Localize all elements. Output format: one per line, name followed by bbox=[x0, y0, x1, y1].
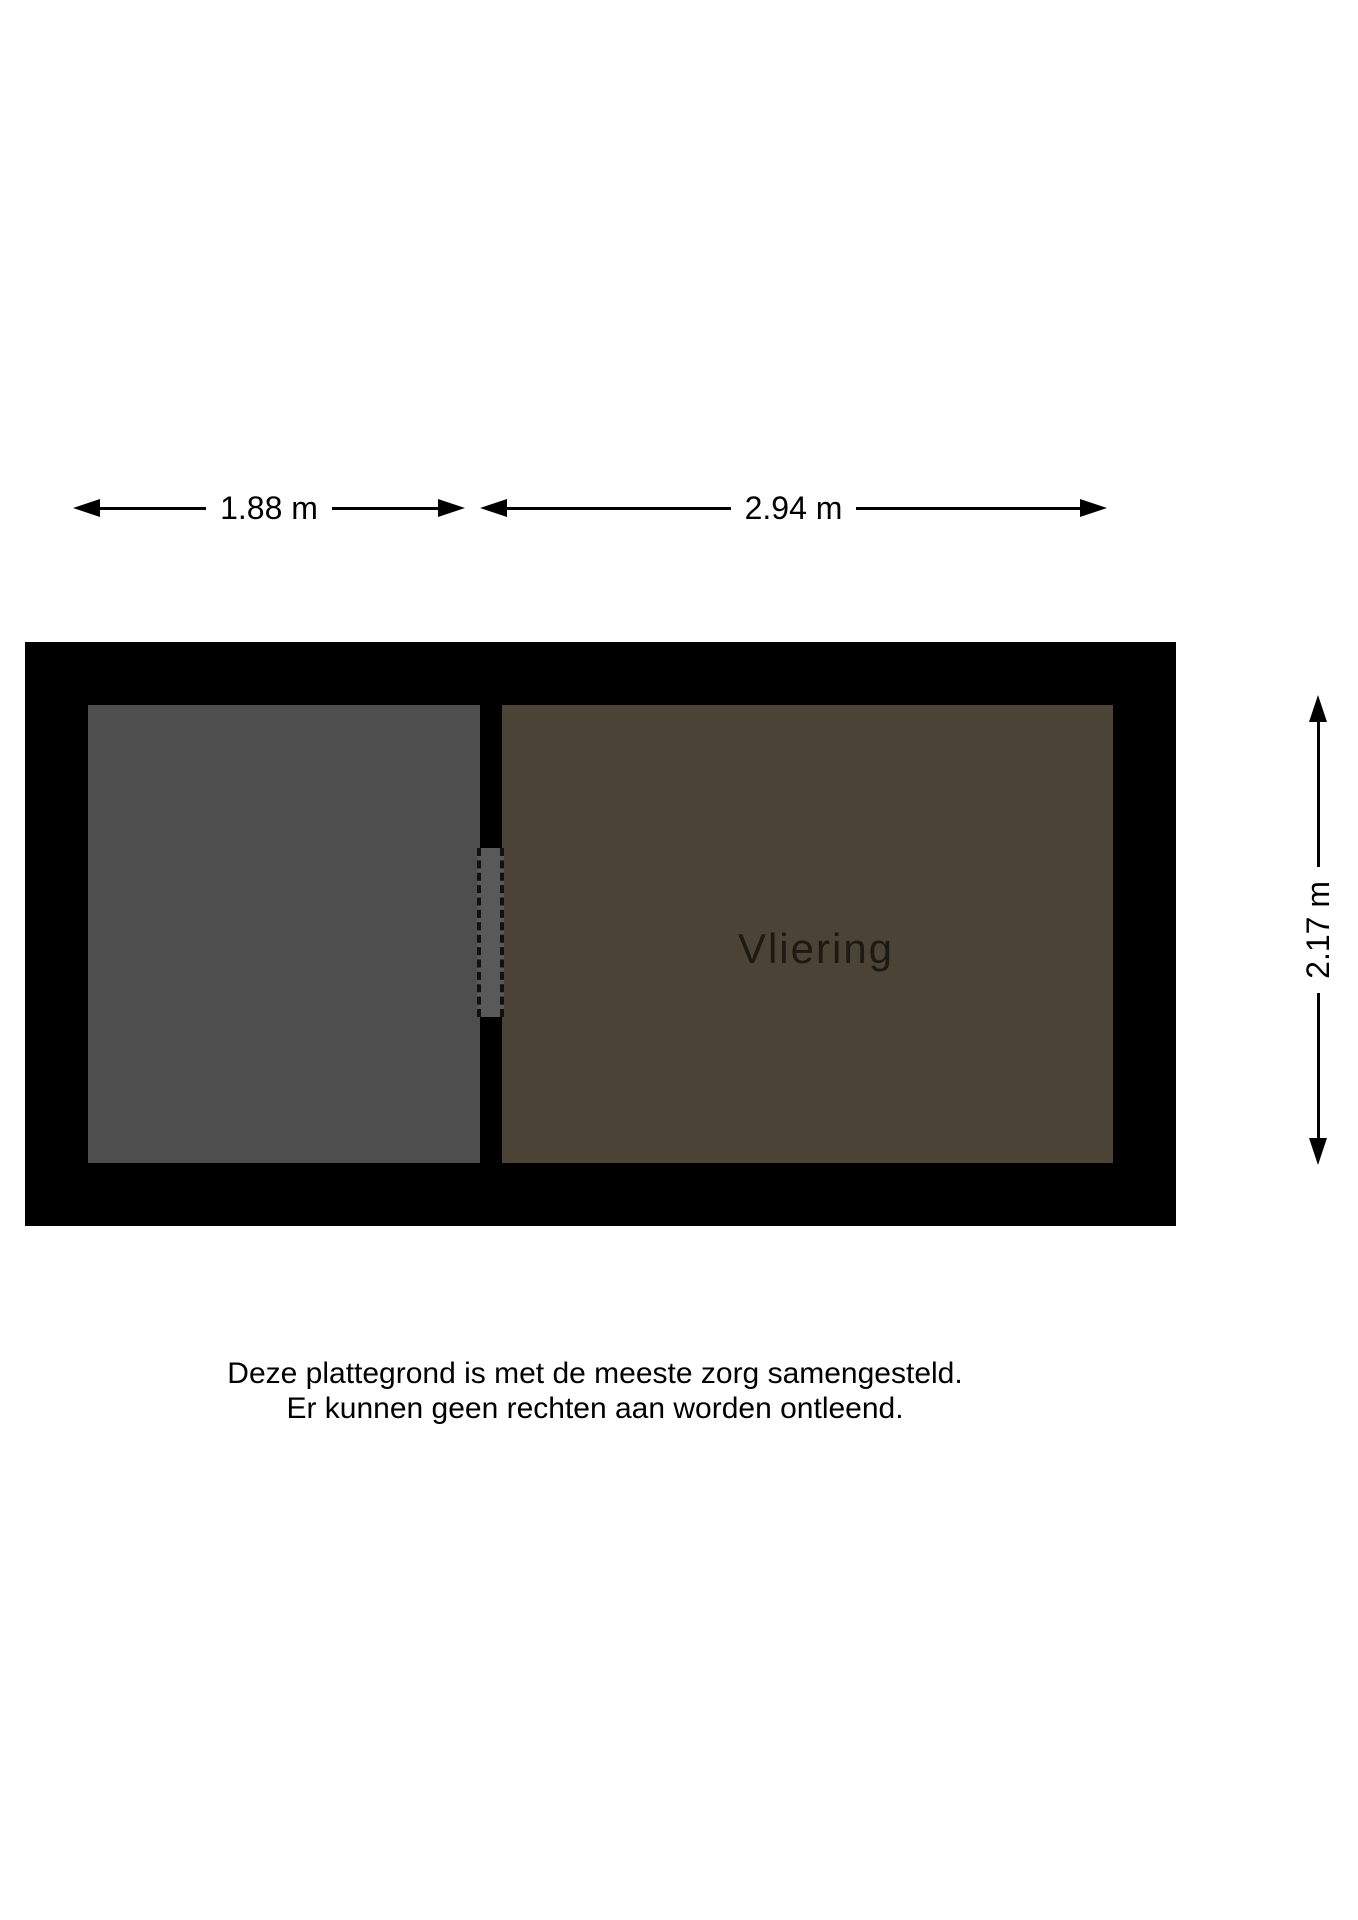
disclaimer: Deze plattegrond is met de meeste zorg s… bbox=[0, 1356, 1190, 1426]
dimension-line bbox=[856, 507, 1080, 510]
arrow-right-icon bbox=[1080, 499, 1107, 517]
arrow-right-icon bbox=[438, 499, 465, 517]
dimension-line bbox=[1317, 722, 1320, 867]
room-left bbox=[88, 705, 480, 1163]
dimension-line bbox=[1317, 993, 1320, 1138]
disclaimer-line-2: Er kunnen geen rechten aan worden ontlee… bbox=[0, 1391, 1190, 1426]
disclaimer-line-1: Deze plattegrond is met de meeste zorg s… bbox=[0, 1356, 1190, 1391]
dimension-line bbox=[332, 507, 438, 510]
dimension-line bbox=[507, 507, 731, 510]
room-label-vliering: Vliering bbox=[738, 925, 894, 973]
arrow-left-icon bbox=[480, 499, 507, 517]
dimension-line bbox=[100, 507, 206, 510]
floorplan-canvas: 1.88 m 2.94 m Vliering 2.17 m Deze platt… bbox=[0, 0, 1358, 1920]
dimension-right: 2.17 m bbox=[1299, 695, 1337, 1165]
arrow-up-icon bbox=[1309, 695, 1327, 722]
arrow-left-icon bbox=[73, 499, 100, 517]
dimension-top-right: 2.94 m bbox=[480, 486, 1107, 530]
arrow-down-icon bbox=[1309, 1138, 1327, 1165]
dimension-top-left: 1.88 m bbox=[73, 486, 465, 530]
dimension-label-top-left: 1.88 m bbox=[206, 486, 332, 530]
wall-opening-dashed bbox=[477, 848, 504, 1017]
dimension-label-top-right: 2.94 m bbox=[731, 486, 857, 530]
dimension-label-right: 2.17 m bbox=[1299, 867, 1337, 993]
floorplan-outline: Vliering bbox=[25, 642, 1176, 1226]
